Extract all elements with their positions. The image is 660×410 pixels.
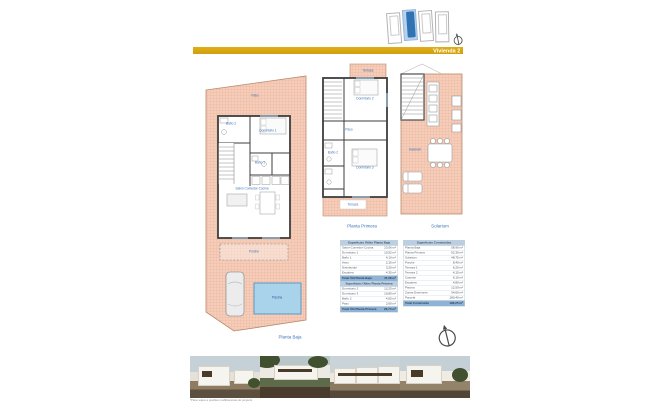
planta-baja-plan — [204, 74, 307, 332]
vegetation-shape — [308, 356, 328, 368]
row-label: Escalera — [342, 271, 354, 276]
row-label: Terraza 1 — [405, 266, 418, 271]
row-label: Distribuidor — [342, 266, 357, 271]
room-label-bano2-p1: Baño 2 — [328, 151, 338, 154]
table-superficies-utiles-planta-primera: Superficies Útiles Planta Primera Dormit… — [340, 281, 398, 313]
outdoor-kitchen-counter — [427, 82, 439, 126]
north-compass-icon-large — [434, 322, 460, 350]
row-value: 8,40 m² — [453, 261, 463, 266]
site-plot-2-highlighted — [402, 9, 418, 41]
room-label-bano1: Baño 1 — [255, 161, 265, 164]
row-value: 180,40 m² — [449, 296, 463, 301]
row-value: 4,35 m² — [386, 271, 396, 276]
room-label-patio: Patio — [251, 94, 258, 97]
table-superficies-utiles-planta-baja: Superficies Útiles Planta Baja Salón-Com… — [340, 240, 398, 282]
row-value: 6,20 m² — [453, 266, 463, 271]
bed-dormitorio-3 — [352, 149, 377, 166]
row-value: 34,60 m² — [451, 291, 463, 296]
room-label-dormitorio3: Dormitorio 3 — [356, 166, 373, 169]
room-label-porche: Porche — [249, 250, 259, 253]
table-title: Superficies Útiles Planta Baja — [341, 241, 398, 246]
table-title: Superficies Útiles Planta Primera — [341, 282, 398, 287]
row-value: 2,15 m² — [386, 261, 396, 266]
row-value: 3,20 m² — [386, 266, 396, 271]
room-label-terraza-sup: Terraza — [363, 69, 374, 72]
table-row: Salón-Comedor-Cocina23,06 m² — [341, 246, 398, 251]
row-label: Solarium — [405, 256, 417, 261]
site-plot-1 — [386, 12, 402, 44]
vegetation-shape — [248, 378, 260, 388]
table-total-row: Total Útil Planta Primera 29,70 m² — [341, 307, 398, 313]
plan-caption-planta-primera: Planta Primera — [347, 224, 377, 229]
row-value: 6,10 m² — [453, 276, 463, 281]
site-plot-footprint — [421, 13, 431, 34]
row-value: 10,52 m² — [384, 251, 396, 256]
floor-outline — [323, 78, 387, 197]
table-body: Dormitorio 212,25 m²Dormitorio 310,80 m²… — [341, 287, 398, 307]
site-location-plan — [386, 7, 450, 45]
row-label: Planta Baja — [405, 246, 420, 251]
window-shape — [411, 370, 423, 377]
site-plot-4 — [435, 11, 450, 42]
site-plot-footprint — [438, 14, 447, 34]
row-value: 52,30 m² — [451, 251, 463, 256]
row-value: 23,06 m² — [384, 246, 396, 251]
site-plot-3 — [418, 10, 434, 42]
row-value: 12,50 m² — [451, 286, 463, 291]
window-strip-shape — [338, 373, 392, 376]
render-photo-2 — [260, 356, 330, 398]
row-label: Parcela — [405, 296, 415, 301]
row-label: Escalera — [405, 281, 417, 286]
render-photo-3 — [330, 356, 400, 398]
room-label-salon: Salón Comedor Cocina — [235, 187, 268, 190]
total-label: Total Útil Planta Primera — [342, 307, 376, 312]
total-label: Total Construida — [405, 301, 429, 306]
row-label: Dormitorio 1 — [342, 251, 358, 256]
room-label-terraza-inf: Terraza — [348, 203, 359, 206]
row-label: Porche — [405, 261, 415, 266]
row-label: Baño 1 — [342, 256, 352, 261]
row-label: Dormitorio 2 — [342, 287, 358, 292]
title-banner: Vivienda 2 — [193, 47, 463, 54]
apartment-block-shape — [274, 365, 318, 380]
row-value: 4,80 m² — [453, 281, 463, 286]
row-label: Salón-Comedor-Cocina — [342, 246, 373, 251]
vegetation-shape — [452, 368, 468, 382]
row-label: Piscina — [405, 286, 415, 291]
disclaimer-text: *Plano sujeto a posibles modificaciones … — [190, 399, 252, 402]
row-value: 4,05 m² — [386, 297, 396, 302]
parked-car — [226, 272, 244, 316]
table-body: Salón-Comedor-Cocina23,06 m²Dormitorio 1… — [341, 246, 398, 276]
banner-label: Vivienda 2 — [433, 47, 460, 53]
render-photo-4 — [400, 356, 470, 398]
room-label-dormitorio2: Dormitorio 2 — [356, 97, 373, 100]
row-label: Baño 2 — [342, 297, 352, 302]
render-photo-1 — [190, 356, 260, 398]
row-label: Zonas Exteriores — [405, 291, 428, 296]
row-label: Paso — [342, 302, 349, 307]
row-value: 58,90 m² — [451, 246, 463, 251]
plan-caption-solarium: Solarium — [431, 224, 449, 229]
stair-bulkhead — [401, 74, 424, 120]
room-label-bano2: Baño 2 — [226, 122, 236, 125]
site-plot-footprint — [389, 15, 399, 36]
table-superficies-construidas: Superficies Construidas Planta Baja58,90… — [403, 240, 465, 307]
plan-sheet: Vivienda 2 — [0, 0, 660, 410]
table-body: Planta Baja58,90 m²Planta Primera52,30 m… — [404, 246, 465, 301]
row-label: Terraza 2 — [405, 271, 418, 276]
table-total-row: Total Construida 196,25 m² — [404, 301, 465, 307]
row-label: Aseo — [342, 261, 349, 266]
room-label-paso: Paso — [345, 128, 352, 131]
stairs — [219, 143, 234, 184]
window-shape — [202, 371, 212, 377]
planta-primera-plan — [322, 63, 388, 219]
row-value: 4,10 m² — [386, 256, 396, 261]
row-value: 10,80 m² — [384, 292, 396, 297]
row-label: Casetón — [405, 276, 416, 281]
roof-edge-line — [401, 64, 442, 74]
total-value: 29,70 m² — [384, 307, 396, 312]
dining-table-chairs — [428, 138, 452, 167]
row-value: 4,15 m² — [453, 271, 463, 276]
room-label-piscina: Piscina — [272, 296, 282, 299]
row-value: 48,75 m² — [451, 256, 463, 261]
plan-caption-planta-baja: Planta Baja — [278, 335, 301, 340]
total-value: 196,25 m² — [449, 301, 463, 306]
villa-shape — [334, 368, 356, 384]
room-label-solarium: Solarium — [409, 148, 422, 151]
bbq-units — [452, 96, 461, 132]
window-strip-shape — [278, 369, 312, 372]
row-label: Planta Primera — [405, 251, 425, 256]
room-label-dormitorio1: Dormitorio 1 — [259, 129, 276, 132]
north-compass-icon-small — [452, 32, 464, 46]
row-label: Dormitorio 3 — [342, 292, 358, 297]
bed-dormitorio-2 — [354, 80, 378, 95]
highlighted-unit — [405, 11, 415, 37]
solarium-plan — [400, 62, 464, 220]
row-value: 2,60 m² — [386, 302, 396, 307]
row-value: 12,25 m² — [384, 287, 396, 292]
